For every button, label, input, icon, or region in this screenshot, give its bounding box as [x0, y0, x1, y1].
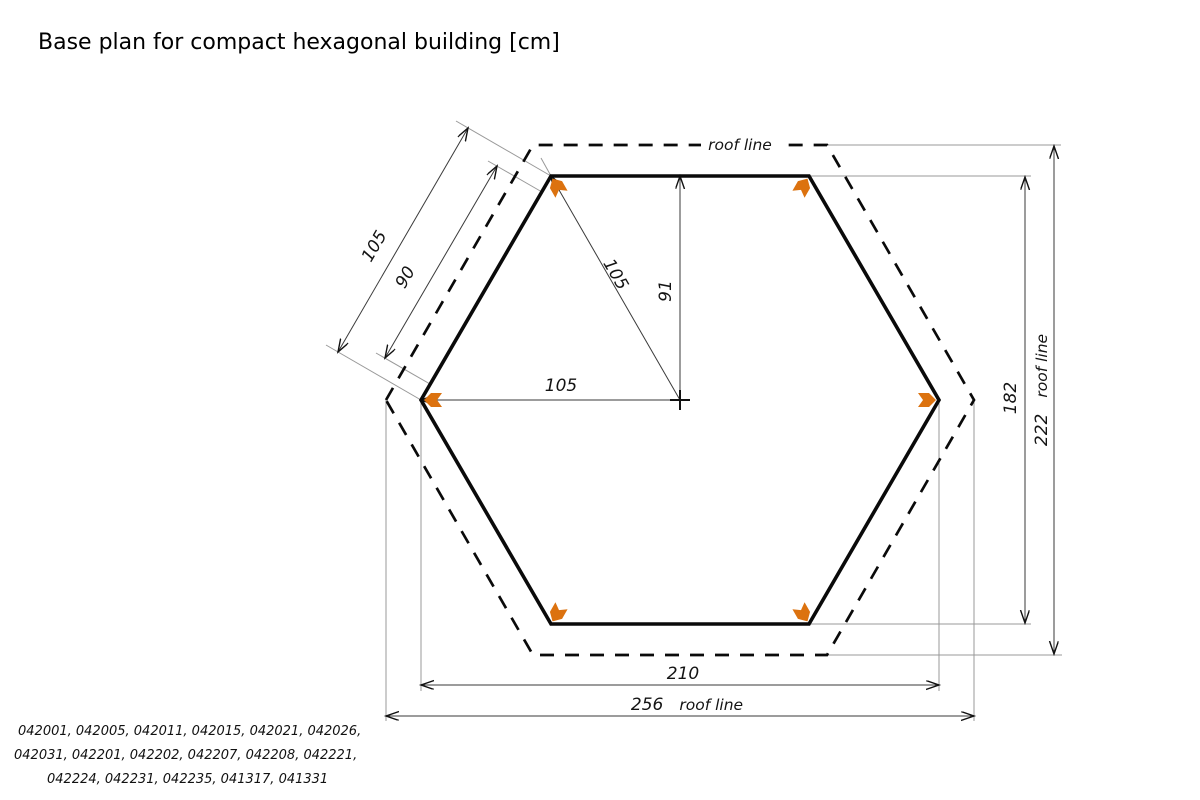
dim-edge-outer-text: 105 [358, 227, 392, 265]
dimension-lines [338, 128, 1054, 716]
dim-wall-height-text: 182 [1001, 382, 1021, 414]
drawing-sheet: Base plan for compact hexagonal building… [0, 0, 1200, 800]
dim-edge-inner-line [385, 166, 497, 358]
dim-apothem-text: 91 [656, 280, 676, 302]
roof-line-label-top: roof line [708, 136, 772, 154]
center-mark [670, 390, 690, 410]
extension-line [456, 121, 551, 176]
dim-edge-outer-line [338, 128, 468, 352]
dim-roof-height-text: 222roof line [1032, 334, 1052, 446]
model-numbers-line: 042001, 042005, 042011, 042015, 042021, … [18, 720, 380, 744]
model-numbers-line: 042224, 042231, 042235, 041317, 041331 [47, 768, 380, 792]
extension-lines [326, 121, 1062, 721]
dim-center-to-corner-text: 105 [545, 376, 577, 396]
floor-plan-diagram: roof line 210 256roof line 182 222roof l… [0, 0, 1200, 800]
dim-edge-inner-text: 90 [392, 263, 420, 292]
model-numbers-line: 042031, 042201, 042202, 042207, 042208, … [14, 744, 380, 768]
dim-wall-width-text: 210 [667, 664, 699, 684]
model-numbers: 042001, 042005, 042011, 042015, 042021, … [0, 720, 380, 792]
dim-roof-width-value: 256 [631, 695, 664, 715]
roof-line-label-right: roof line [1033, 334, 1051, 398]
extension-line [326, 345, 421, 400]
dim-radius-text: 105 [599, 255, 633, 293]
roof-line-label-bottom: roof line [679, 696, 743, 714]
dim-roof-height-value: 222 [1032, 414, 1052, 446]
dim-roof-width-text: 256roof line [631, 695, 743, 715]
corner-marker [918, 393, 936, 407]
